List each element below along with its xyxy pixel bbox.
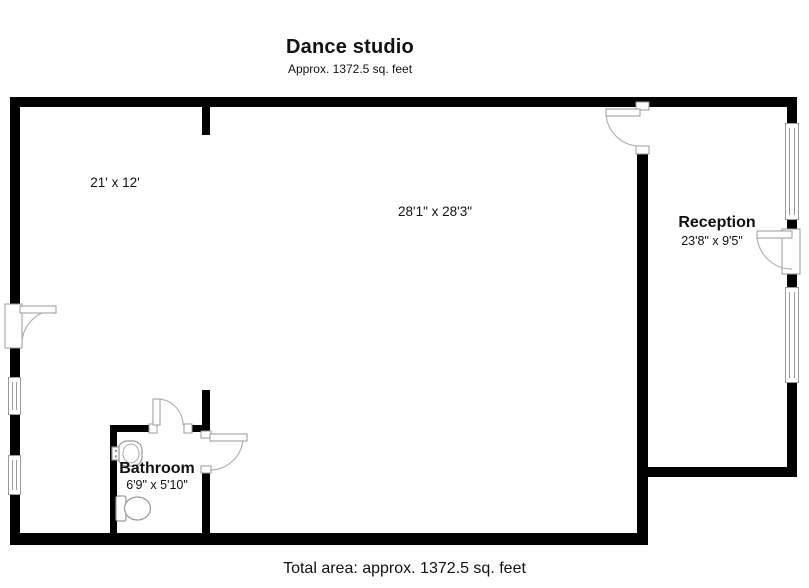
label-area-21x12: 21' x 12'	[90, 175, 139, 190]
door-bathroom-north	[149, 399, 192, 433]
label-studio-dimensions: 28'1" x 28'3"	[398, 204, 472, 219]
label-reception-name: Reception	[678, 214, 755, 232]
label-bathroom-name: Bathroom	[119, 460, 195, 478]
door-east-exterior	[757, 229, 800, 274]
label-bathroom-dimensions: 6'9" x 5'10"	[126, 478, 188, 492]
total-area-text: Total area: approx. 1372.5 sq. feet	[0, 560, 809, 578]
door-west-exterior	[5, 304, 56, 348]
door-bathroom-east	[201, 431, 247, 473]
door-reception-interior	[606, 102, 649, 154]
doors-fixtures-layer	[0, 0, 809, 588]
label-reception-dimensions: 23'8" x 9'5"	[681, 234, 743, 248]
toilet-icon	[116, 496, 151, 521]
floor-plan: Dance studio Approx. 1372.5 sq. feet	[0, 0, 809, 588]
